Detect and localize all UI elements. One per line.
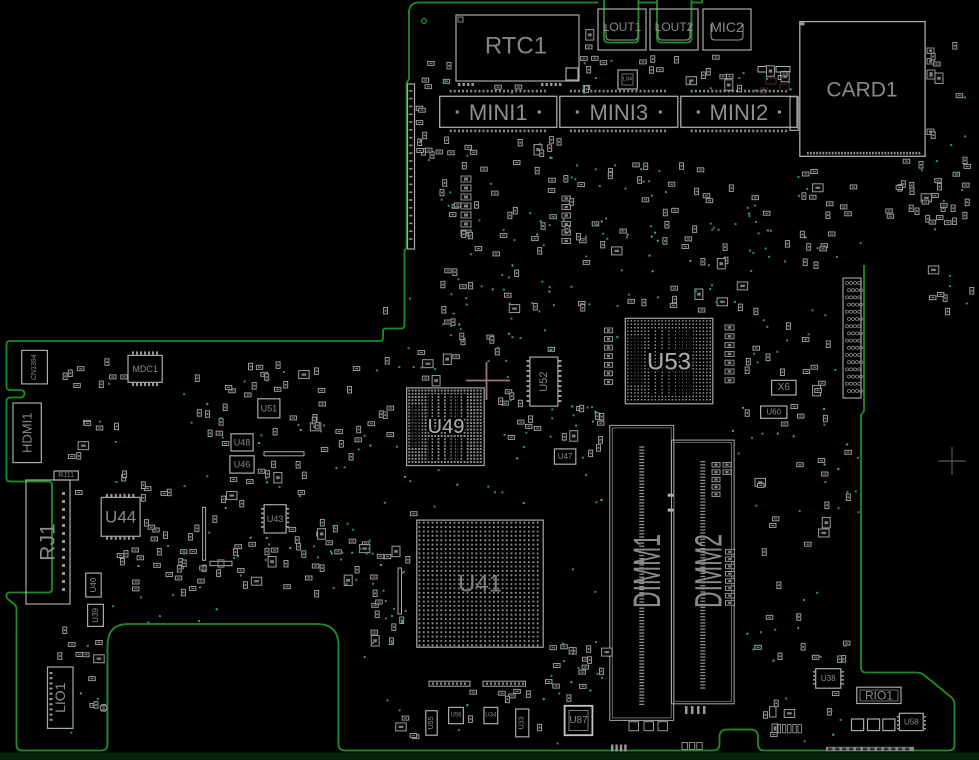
svg-text:U55: U55 — [428, 716, 435, 729]
svg-text:L84: L84 — [623, 77, 632, 83]
svg-text:U49: U49 — [428, 416, 465, 438]
svg-text:U48: U48 — [234, 437, 251, 447]
svg-text:HDMI1: HDMI1 — [20, 413, 35, 453]
svg-text:U41: U41 — [458, 571, 502, 598]
svg-text:U87: U87 — [569, 715, 588, 726]
svg-text:MINI1: MINI1 — [469, 100, 528, 125]
svg-text:LOUT2: LOUT2 — [655, 20, 694, 34]
svg-text:LIO1: LIO1 — [52, 682, 68, 713]
svg-text:U60: U60 — [766, 408, 781, 417]
svg-text:RJ11: RJ11 — [58, 472, 74, 479]
svg-text:MINI2: MINI2 — [710, 100, 769, 125]
svg-text:DIMM1: DIMM1 — [627, 534, 669, 608]
svg-text:CARD1: CARD1 — [826, 79, 897, 102]
svg-text:RIO1: RIO1 — [865, 688, 893, 702]
svg-text:U43: U43 — [267, 514, 284, 524]
svg-text:U33: U33 — [519, 716, 526, 729]
svg-text:RJ1: RJ1 — [37, 523, 60, 560]
svg-text:MIC2: MIC2 — [710, 19, 744, 35]
svg-text:U51: U51 — [261, 403, 278, 413]
svg-text:U53: U53 — [647, 349, 691, 376]
svg-text:LOUT1: LOUT1 — [603, 20, 642, 34]
svg-text:U47: U47 — [558, 452, 573, 461]
svg-text:U46: U46 — [234, 459, 251, 469]
svg-text:RTC1: RTC1 — [485, 33, 547, 60]
svg-text:MDC1: MDC1 — [132, 364, 158, 374]
svg-text:U44: U44 — [105, 507, 136, 526]
svg-text:U34: U34 — [485, 713, 497, 719]
svg-text:U38: U38 — [821, 674, 836, 683]
svg-text:U39: U39 — [91, 607, 100, 622]
svg-text:U56: U56 — [450, 713, 462, 719]
svg-text:U58: U58 — [904, 717, 919, 726]
svg-text:X6: X6 — [778, 382, 791, 393]
svg-text:CN1394: CN1394 — [31, 354, 38, 380]
svg-text:MINI3: MINI3 — [589, 100, 648, 125]
svg-text:DIMM2: DIMM2 — [689, 534, 731, 608]
svg-text:U40: U40 — [89, 577, 98, 592]
svg-text:U52: U52 — [538, 372, 550, 392]
